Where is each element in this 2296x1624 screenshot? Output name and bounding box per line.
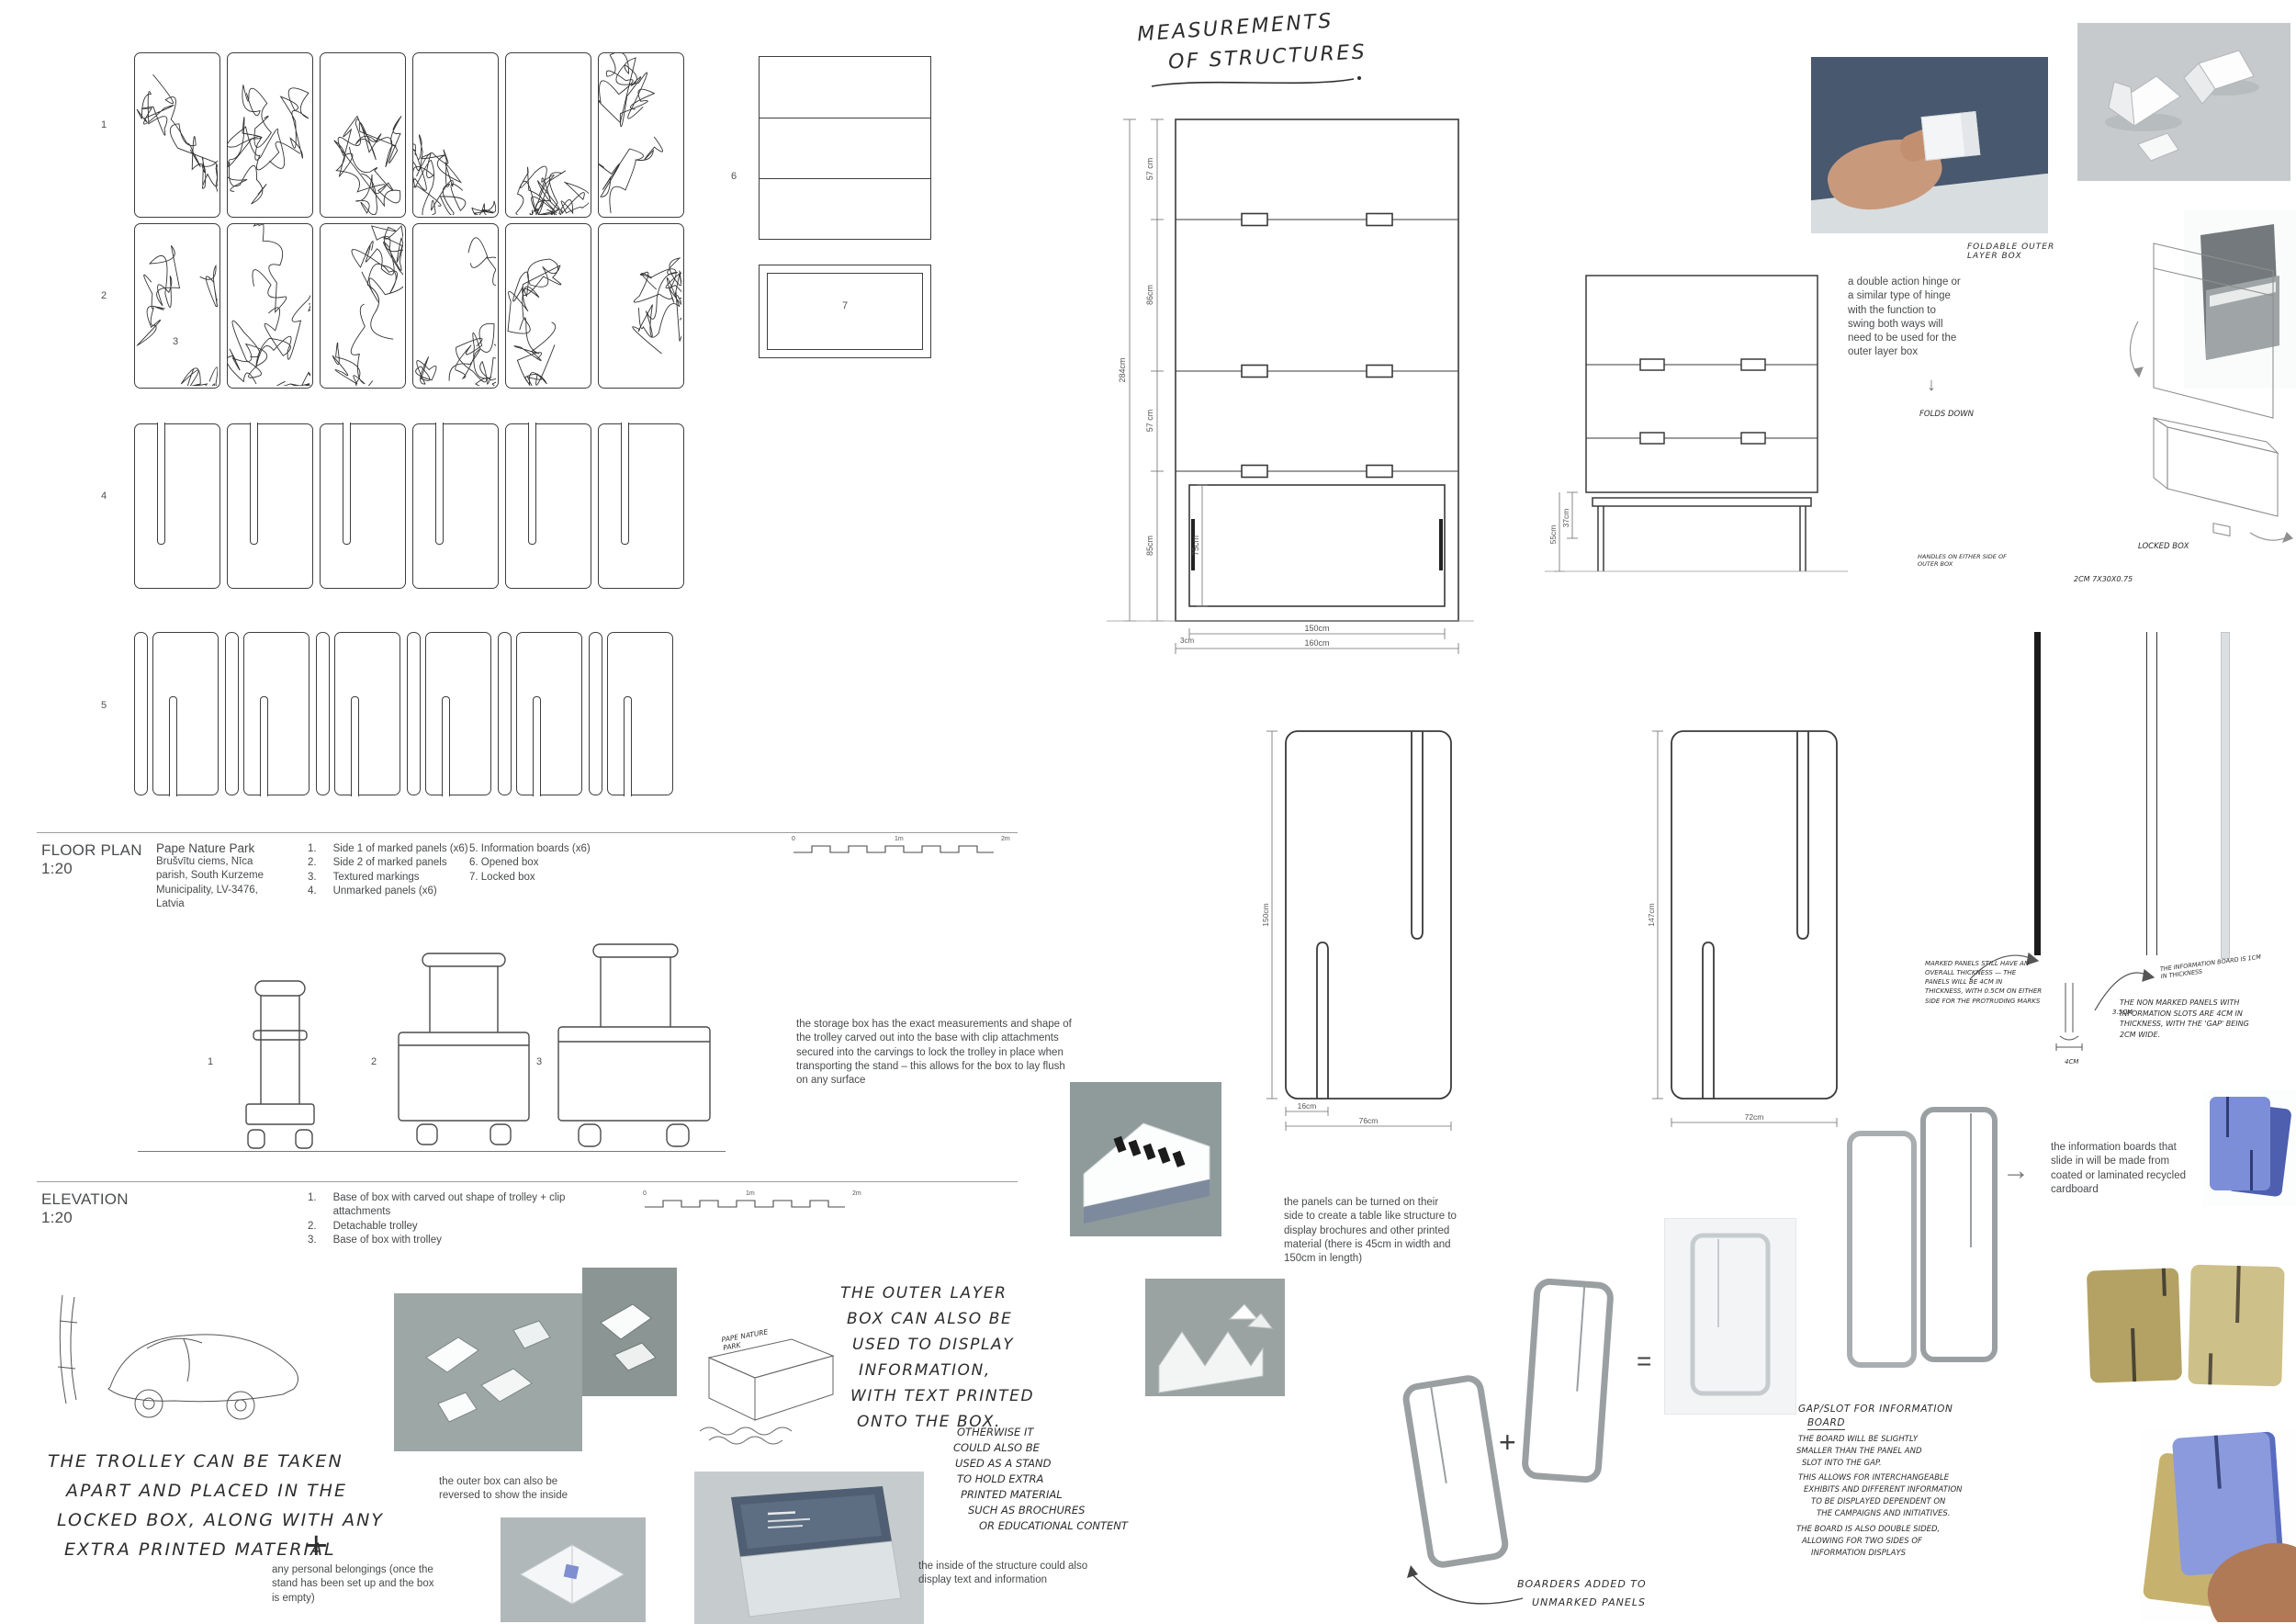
boarders-note-line: BOARDERS ADDED TO: [1517, 1578, 1647, 1590]
gap-slot-line: EXHIBITS AND DIFFERENT INFORMATION: [1804, 1485, 1963, 1494]
scalebar-label: 2m: [1001, 836, 1010, 842]
down-arrow: ↓: [1927, 375, 1936, 396]
elevation-ground-line: [138, 1151, 726, 1152]
belongings-note: any personal belongings (once the stand …: [272, 1563, 437, 1606]
site-address-line: parish, South Kurzeme: [156, 869, 294, 883]
paper-pieces: [2077, 23, 2290, 181]
site-address-line: Latvia: [156, 897, 294, 911]
elevation-legend: 1.Base of box with carved out shape of t…: [308, 1191, 581, 1247]
locked-box-number: 7: [760, 300, 930, 311]
folded-box: [501, 1517, 646, 1622]
scalebar-label: 2m: [852, 1190, 861, 1197]
hinge-note: a double action hinge or a similar type …: [1848, 276, 1964, 360]
legend-item: Side 1 of marked panels (x6): [333, 842, 468, 856]
storage-box-note: the storage box has the exact measuremen…: [796, 1018, 1072, 1088]
info-board-side-view: [2221, 632, 2230, 959]
frame-photo-light: [1664, 1218, 1796, 1415]
outer-box-reversed-note: the outer box can also be reversed to sh…: [439, 1475, 591, 1504]
foldable-box-label: FOLDABLE OUTER LAYER BOX: [1967, 242, 2059, 261]
structure1-drawing: 57 cm 86cm 57 cm 85cm 284cm 75cm 150cm 1…: [1107, 108, 1474, 660]
marked-panels-row-2: [134, 223, 684, 389]
panel-strip: [134, 632, 148, 795]
board-slot: [2226, 1097, 2229, 1137]
floor-plan-title-block: FLOOR PLAN 1:20: [41, 841, 142, 878]
cardboard-board: [2087, 1268, 2182, 1382]
trolley-note-line: EXTRA PRINTED MATERIAL: [64, 1539, 336, 1560]
cardboard-boards-photo: [2081, 1257, 2292, 1396]
unmarked-panel: [227, 423, 313, 589]
dim-label: 57 cm: [1145, 410, 1154, 433]
marked-panels-row-1: [134, 52, 684, 218]
floor-plan-scalebar: 0 1m 2m: [792, 838, 1012, 862]
elev1-number: 1: [208, 1056, 213, 1067]
panels-table-note: the panels can be turned on their side t…: [1284, 1196, 1458, 1266]
elevation-scale: 1:20: [41, 1209, 129, 1227]
panel-slot: [435, 423, 444, 545]
otherwise-line: OTHERWISE IT: [957, 1426, 1033, 1438]
blue-board-front: [2210, 1097, 2270, 1190]
frame-outline: [1665, 1219, 1795, 1414]
slotted-panel-unit: [589, 632, 673, 795]
box-side-shade: [1961, 112, 1980, 155]
measurements-title-1: MEASUREMENTS: [1136, 10, 1334, 47]
open-box: [694, 1472, 924, 1624]
floor-plan-legend-b: 5. Information boards (x6) 6. Opened box…: [469, 842, 591, 885]
title-underline: [1148, 73, 1364, 92]
paper-models-photo: [394, 1293, 582, 1451]
slot-detail-sketch: [2043, 976, 2108, 1063]
elevation-drawing-3: [549, 939, 719, 1152]
scalebar-label: 1m: [895, 836, 904, 842]
gap-slot-line: ALLOWING FOR TWO SIDES OF: [1802, 1537, 1922, 1546]
folded-box-photo: [501, 1517, 646, 1622]
dim-label: 284cm: [1118, 357, 1127, 382]
legend-number: 1.: [308, 1191, 317, 1220]
unmarked-panel: [505, 423, 591, 589]
opened-box-drawing: [759, 56, 931, 240]
slotted-panel: [152, 632, 219, 795]
texture-number: 3: [173, 336, 178, 347]
slotted-panel: [334, 632, 400, 795]
locked-box-drawing: 7: [759, 265, 931, 358]
panel-drawing-right: 72cm 147cm: [1646, 722, 1862, 1135]
marked-panel: [134, 52, 220, 218]
panel-slot: [169, 696, 177, 796]
dim-label: 55cm: [1548, 525, 1558, 545]
paper-models-photo-small: [582, 1268, 677, 1396]
row1-number: 1: [101, 119, 107, 130]
legend-item: Base of box with carved out shape of tro…: [333, 1191, 581, 1220]
otherwise-line: USED AS A STAND: [955, 1457, 1051, 1470]
gap-slot-line: TO BE DISPLAYED DEPENDENT ON: [1811, 1497, 1945, 1506]
info-boards-material-note: the information boards that slide in wil…: [2051, 1141, 2196, 1197]
legend-number: 2.: [308, 856, 317, 870]
floor-plan-divider: [37, 832, 1018, 833]
handles-note: HANDLES ON EITHER SIDE OF OUTER BOX: [1918, 553, 2009, 569]
otherwise-line: OR EDUCATIONAL CONTENT: [979, 1519, 1128, 1532]
dim-label: 16cm: [1298, 1101, 1317, 1111]
unmarked-panels-row: [134, 423, 684, 589]
marked-panel: [412, 223, 499, 389]
zigzag-model: [1145, 1279, 1285, 1396]
dim-label: 150cm: [1261, 903, 1270, 927]
site-block: Pape Nature Park Brušvītu ciems, Nīca pa…: [156, 841, 294, 911]
equals-sign: =: [1637, 1347, 1651, 1376]
display-note-line: WITH TEXT PRINTED: [850, 1387, 1034, 1405]
gap-slot-line: INFORMATION DISPLAYS: [1811, 1549, 1906, 1558]
cardboard-board: [2188, 1265, 2284, 1387]
legend-item: 7. Locked box: [469, 871, 591, 885]
board-slot: [2250, 1150, 2253, 1190]
floor-plan-legend-a: 1.Side 1 of marked panels (x6) 2.Side 2 …: [308, 842, 468, 898]
site-name: Pape Nature Park: [156, 841, 294, 855]
right-arrow: →: [2002, 1156, 2030, 1187]
dim-label: 150cm: [1304, 624, 1329, 633]
hand-with-boards-photo: [2140, 1429, 2296, 1622]
panel-slot: [442, 696, 450, 796]
elevation-drawing-2: [386, 948, 542, 1152]
slot-model-photo: [1070, 1082, 1221, 1236]
floor-plan-title: FLOOR PLAN: [41, 841, 142, 860]
panel-slot: [250, 423, 258, 545]
floor-plan-scale: 1:20: [41, 860, 142, 878]
marked-panel: [227, 52, 313, 218]
slotted-panels-row: [134, 632, 673, 795]
trolley-note-line: APART AND PLACED IN THE: [66, 1481, 347, 1501]
unmarked-panel: [320, 423, 406, 589]
site-address-line: Brušvītu ciems, Nīca: [156, 855, 294, 869]
panel-drawing-left: 16cm 76cm 150cm: [1260, 722, 1476, 1135]
marked-panel-side-view: [2034, 632, 2041, 955]
plus-sign: +: [303, 1527, 330, 1563]
board-slot: [2214, 1436, 2222, 1489]
pencil-frame-sketch: [1515, 1272, 1620, 1489]
legend-number: 3.: [308, 1234, 317, 1247]
elev3-number: 3: [536, 1056, 542, 1067]
panel-slot: [351, 696, 359, 796]
row4-number: 4: [101, 491, 107, 502]
gap-slot-line: SLOT INTO THE GAP.: [1802, 1459, 1882, 1468]
legend-item: Unmarked panels (x6): [333, 885, 437, 898]
small-white-box: [1921, 111, 1981, 161]
legend-number: 1.: [308, 842, 317, 856]
panel-strip: [498, 632, 512, 795]
board-slot: [2235, 1266, 2241, 1323]
trolley-car-sketch: [46, 1284, 321, 1440]
gap-slot-title: GAP/SLOT FOR INFORMATION: [1798, 1404, 1953, 1415]
unmarked-panel: [134, 423, 220, 589]
dim-label: 72cm: [1745, 1112, 1764, 1122]
pape-box-sketch: [681, 1303, 856, 1449]
otherwise-line: TO HOLD EXTRA: [957, 1472, 1043, 1485]
opened-box-fold-line: [760, 118, 930, 118]
legend-number: 3.: [308, 871, 317, 885]
panel-slot: [621, 423, 629, 545]
scalebar-label: 0: [792, 836, 795, 842]
panel-slot: [343, 423, 351, 545]
dim-label: 3cm: [1180, 637, 1194, 645]
dim-label: 76cm: [1359, 1116, 1379, 1125]
elevation-title-block: ELEVATION 1:20: [41, 1190, 129, 1227]
foldable-box-sketch: [1947, 230, 2296, 570]
slot-dim-label: 4CM: [2065, 1058, 2078, 1066]
elevation-drawing-1: [220, 976, 340, 1155]
box-dims-note: 2CM 7X30X0.75: [2074, 575, 2133, 583]
locked-box-label: LOCKED BOX: [2138, 542, 2189, 551]
gap-slot-title-2: BOARD: [1807, 1417, 1845, 1430]
board-slot: [2131, 1328, 2136, 1382]
blue-board-photo: [2202, 1089, 2296, 1207]
legend-item: 5. Information boards (x6): [469, 842, 591, 856]
panel-slot: [533, 696, 541, 796]
slotted-panel: [607, 632, 673, 795]
row5-number: 5: [101, 700, 107, 711]
legend-number: 4.: [308, 885, 317, 898]
legend-item: Detachable trolley: [333, 1220, 418, 1234]
slotted-panel: [516, 632, 582, 795]
board-slot: [2162, 1269, 2167, 1296]
dim-label: 86cm: [1145, 285, 1154, 305]
elevation-scalebar: 0 1m 2m: [643, 1192, 863, 1216]
dim-label: 57 cm: [1145, 158, 1154, 181]
folds-down-label: FOLDS DOWN: [1919, 410, 1974, 419]
unmarked-panel-side-view: [2146, 632, 2157, 955]
marked-panel: [598, 52, 684, 218]
boarders-note-line: UNMARKED PANELS: [1532, 1596, 1646, 1608]
opened-box-number: 6: [731, 171, 737, 182]
nonmarked-thickness-note: THE NON MARKED PANELS WITH INFORMATION S…: [2120, 998, 2262, 1040]
marked-panel: [320, 52, 406, 218]
panel-strip: [316, 632, 330, 795]
hand-holding-box-photo: [1811, 57, 2048, 233]
display-note-line: INFORMATION,: [859, 1361, 991, 1380]
unmarked-panel: [412, 423, 499, 589]
marked-panel: [320, 223, 406, 389]
trolley-note-line: THE TROLLEY CAN BE TAKEN: [48, 1451, 343, 1472]
paper-pieces-photo: [2077, 23, 2290, 181]
otherwise-line: PRINTED MATERIAL: [961, 1488, 1063, 1501]
measurements-title-2: OF STRUCTURES: [1167, 40, 1367, 73]
otherwise-line: SUCH AS BROCHURES: [968, 1504, 1085, 1517]
slotted-panel-unit: [225, 632, 310, 795]
gap-slot-line: THE BOARD WILL BE SLIGHTLY: [1798, 1435, 1918, 1444]
display-note-line: THE OUTER LAYER: [840, 1284, 1007, 1303]
locked-box-inner: [767, 273, 923, 350]
panel-strip: [225, 632, 239, 795]
display-note-line: USED TO DISPLAY: [852, 1336, 1014, 1354]
marked-panel: [412, 52, 499, 218]
legend-item: Textured markings: [333, 871, 420, 885]
slotted-panel-unit: [498, 632, 582, 795]
panel-strip: [407, 632, 421, 795]
legend-item: 6. Opened box: [469, 856, 591, 870]
elevation-divider: [37, 1181, 1018, 1182]
legend-item: Base of box with trolley: [333, 1234, 442, 1247]
scalebar-label: 1m: [746, 1190, 755, 1197]
marked-panel: [505, 52, 591, 218]
marked-panel: [227, 223, 313, 389]
plus-sign: +: [1499, 1426, 1516, 1460]
elev2-number: 2: [371, 1056, 377, 1067]
marked-panel: [134, 223, 220, 389]
open-box-inside-photo: [694, 1472, 924, 1624]
panel-slot: [157, 423, 165, 545]
panel-slot: [260, 696, 268, 796]
trolley-note-line: LOCKED BOX, ALONG WITH ANY: [57, 1510, 384, 1530]
gap-slot-line: THE BOARD IS ALSO DOUBLE SIDED,: [1796, 1525, 1940, 1534]
row2-number: 2: [101, 290, 107, 301]
legend-item: Side 2 of marked panels: [333, 856, 447, 870]
paper-pieces: [582, 1268, 677, 1396]
marked-thickness-note: MARKED PANELS STILL HAVE AN OVERALL THIC…: [1925, 959, 2043, 1006]
panel-slot: [624, 696, 632, 796]
slot-model: [1070, 1082, 1221, 1236]
paper-pieces: [394, 1293, 582, 1451]
slotted-panel: [243, 632, 310, 795]
slotted-panel-unit: [134, 632, 219, 795]
dim-label: 160cm: [1304, 638, 1329, 648]
boarders-arrow: [1392, 1543, 1530, 1617]
gap-slot-line: SMALLER THAN THE PANEL AND: [1796, 1447, 1922, 1456]
panel-slot: [528, 423, 536, 545]
otherwise-line: COULD ALSO BE: [953, 1441, 1040, 1454]
opened-box-fold-line: [760, 178, 930, 179]
gap-slot-line: THE CAMPAIGNS AND INITIATIVES.: [1817, 1509, 1950, 1518]
slotted-panel-unit: [407, 632, 491, 795]
design-board: 1 2 3 4 5 6 7 FLOOR PLAN 1:20 Pape Natur…: [0, 0, 2296, 1624]
slotted-panel: [425, 632, 491, 795]
board-slot: [2208, 1353, 2212, 1384]
dim-label: 85cm: [1145, 536, 1154, 556]
site-address-line: Municipality, LV-3476,: [156, 884, 294, 897]
slotted-panel-unit: [316, 632, 400, 795]
elevation-title: ELEVATION: [41, 1190, 129, 1209]
display-note-line: BOX CAN ALSO BE: [847, 1310, 1012, 1328]
dim-label: 37cm: [1561, 509, 1570, 528]
unmarked-panel: [598, 423, 684, 589]
dim-label: 147cm: [1647, 903, 1656, 927]
dim-label: 75cm: [1191, 536, 1200, 556]
legend-number: 2.: [308, 1220, 317, 1234]
zigzag-model-photo: [1145, 1279, 1285, 1396]
pencil-frame-pair: [1842, 1102, 2003, 1401]
scalebar-label: 0: [643, 1190, 647, 1197]
inside-display-note: the inside of the structure could also d…: [918, 1560, 1111, 1588]
marked-panel: [598, 223, 684, 389]
marked-panel: [505, 223, 591, 389]
gap-slot-line: THIS ALLOWS FOR INTERCHANGEABLE: [1798, 1473, 1949, 1483]
structure2-drawing: 37cm 55cm: [1545, 268, 1848, 608]
panel-strip: [589, 632, 602, 795]
